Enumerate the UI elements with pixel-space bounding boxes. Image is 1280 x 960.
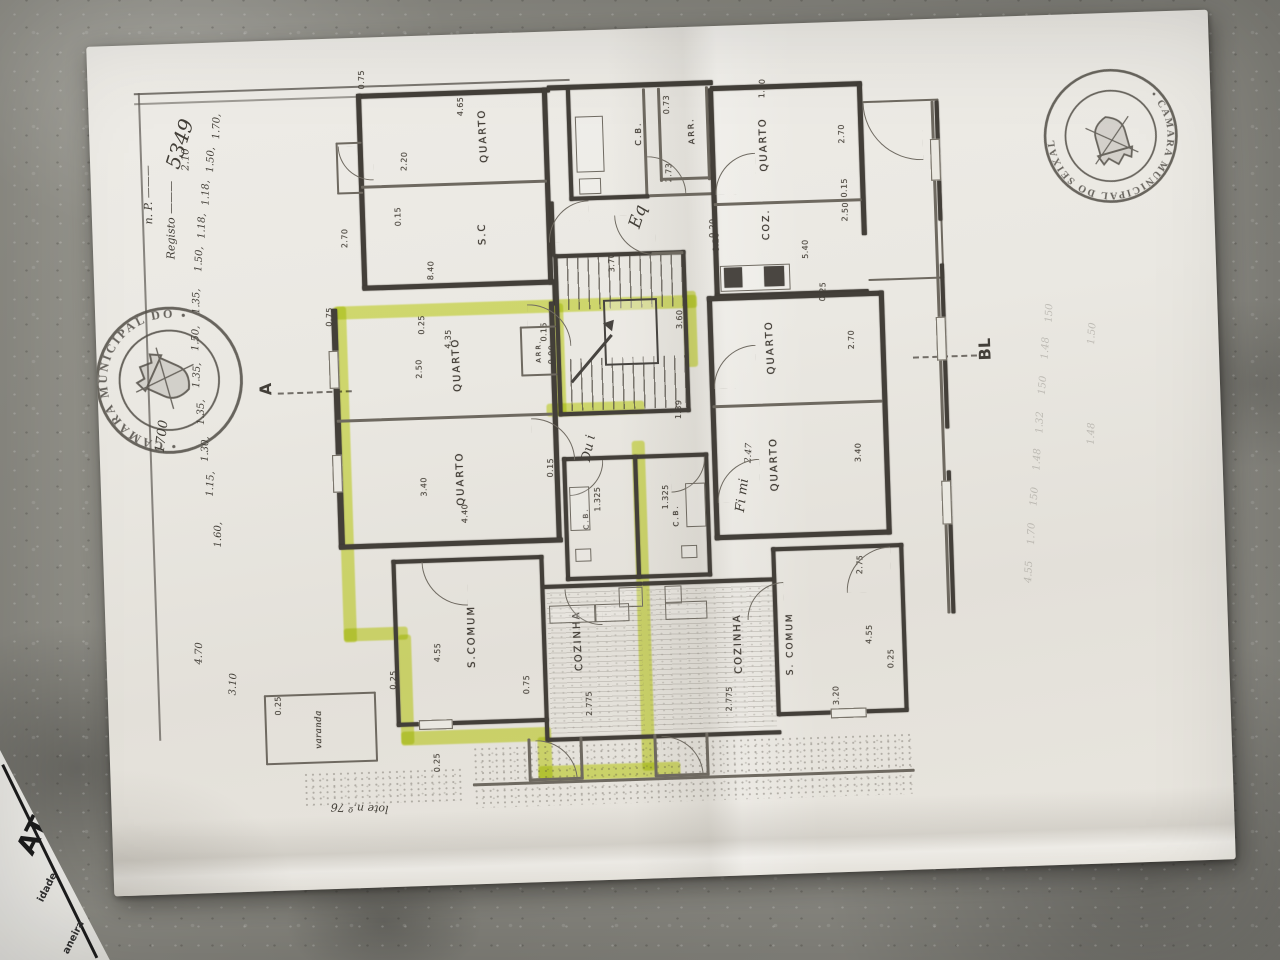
wall [569, 194, 649, 201]
dimension-text: 4.35 [443, 329, 452, 349]
ghost-number: 4.55 [1023, 560, 1035, 583]
fixture [549, 604, 596, 624]
room-label: COZ. [761, 208, 772, 240]
dimension-text: 2.20 [399, 152, 408, 172]
ghost-number: 150 [1028, 487, 1040, 507]
door-swing-arc [646, 155, 686, 195]
dimension-chain-item: 1.18, [201, 180, 212, 205]
fixture [575, 548, 591, 562]
partition-line [361, 180, 547, 189]
form-text-fragment: aneira [61, 919, 87, 956]
fixture [685, 483, 706, 528]
coat-of-arms-icon [130, 345, 199, 411]
door-swing-arc [338, 145, 374, 181]
appliance-icon [724, 267, 743, 288]
ghost-number: 150 [1037, 375, 1049, 395]
dimension-text: 8.40 [426, 261, 435, 281]
dimension-chain-item: 1.50, [190, 326, 201, 352]
fixture [595, 603, 630, 622]
wall [566, 89, 574, 201]
wall [547, 80, 713, 91]
dimension-text: 4.55 [864, 624, 873, 644]
dimension-chain-item: 1.35, [191, 289, 202, 314]
handwriting-note: n. P. ——— [141, 165, 155, 224]
dimension-text: 0.75 [522, 675, 531, 694]
partition-line [337, 413, 553, 423]
dimension-text: 2.70 [340, 229, 349, 248]
ghost-number: 1.48 [1086, 422, 1098, 445]
dimension-text: 4.65 [456, 97, 465, 116]
dimension-text: 1.325 [593, 487, 602, 512]
dimension-chain-item: 3.10 [227, 673, 239, 696]
dimension-text: 3.20 [831, 686, 840, 706]
window [936, 316, 947, 360]
handwriting-note: Registo ——— [164, 181, 177, 260]
dimension-chain-item: 2.10 [180, 148, 191, 170]
dimension-chain-item: 1.50, [193, 246, 205, 272]
door-swing-arc [863, 101, 924, 162]
dimension-text: 2.70 [837, 124, 846, 144]
municipal-stamp-left: • CÂMARA MUNICIPAL DO • [86, 277, 272, 483]
dimension-text: 4.55 [433, 643, 442, 663]
dimension-text: 3.40 [419, 477, 428, 497]
room-label: QUARTO [454, 451, 467, 506]
window [419, 719, 453, 730]
room-label: C.B. [672, 504, 681, 526]
dimension-text: 2.50 [840, 202, 849, 222]
door-swing-arc [716, 459, 760, 503]
fixture [681, 545, 697, 559]
room-label: ARR. [686, 117, 696, 144]
window [930, 139, 941, 181]
wall [899, 543, 909, 710]
dimension-chain-item: 1.50, [205, 147, 217, 173]
room-label: C.B. [634, 121, 643, 145]
wall [339, 537, 563, 549]
partition-line [264, 695, 268, 765]
window [328, 351, 339, 389]
door-swing-arc [845, 546, 891, 592]
dimension-text: 2.50 [414, 359, 423, 379]
dimension-text: 0.75 [357, 70, 366, 90]
partition-line [714, 198, 862, 205]
ghost-number: 1.50 [1086, 322, 1099, 345]
room-label: QUARTO [757, 117, 770, 172]
door-swing-arc [712, 345, 756, 389]
door-swing-arc [714, 153, 756, 195]
dimension-chain-item: 4.70 [194, 642, 205, 664]
dimension-chain-item: 1.30, [200, 436, 211, 462]
door-swing-arc [421, 561, 467, 607]
stair-landing [603, 298, 659, 366]
room-label: QUARTO [768, 437, 781, 492]
fixture [665, 601, 708, 620]
dimension-chain-item: 1.35, [191, 362, 203, 388]
coat-of-arms-icon [1084, 111, 1140, 170]
door-swing-arc [614, 214, 656, 256]
fixture [575, 116, 605, 173]
floorplan-drawing: QUARTOS.CC.B.ARR.QUARTOCOZ.QUARTOQUARTOA… [309, 38, 994, 829]
dimension-text: 2.70 [847, 330, 856, 350]
dimension-text: 0.73 [662, 95, 671, 115]
wall [391, 555, 543, 564]
dimension-chain-item: 1.18, [196, 213, 207, 239]
exterior-paving-texture [302, 767, 463, 806]
ghost-number: 1.70 [1026, 522, 1038, 545]
room-label: S.C [477, 222, 489, 245]
dimension-text: 1.325 [661, 484, 670, 509]
ghost-number: 150 [1044, 303, 1056, 322]
dimension-text: 0.15 [840, 178, 849, 197]
wall [362, 279, 554, 290]
window [831, 707, 867, 718]
wall [710, 81, 862, 91]
partition-line [374, 692, 378, 762]
door-swing-arc [531, 417, 575, 461]
dimension-chain-item: 1.70, [211, 114, 222, 140]
floorplan-sheet: • CÂMARA MUNICIPAL DO • • CÂMARA MUNICIP… [86, 10, 1236, 897]
window [332, 455, 343, 493]
window [941, 480, 952, 524]
fixture [579, 178, 602, 195]
partition-line [264, 692, 376, 698]
dimension-text: 0.25 [417, 315, 426, 334]
ghost-number: 1.32 [1034, 411, 1046, 434]
handwriting-note: 5349 [160, 116, 198, 172]
partition-line [520, 327, 524, 377]
partition-line [266, 760, 378, 766]
dimension-text: 0.15 [393, 207, 402, 227]
highlighter-mark [398, 634, 415, 744]
room-label: S. COMUM [785, 612, 796, 675]
room-label: QUARTO [476, 108, 490, 163]
dimension-text: 4.40 [460, 504, 469, 523]
photo-scene: AT idade aneira • CÂMARA MUNICIPAL DO • [0, 0, 1280, 960]
dimension-chain-item: 1.60, [213, 522, 224, 547]
dimension-chain-item: 1.15, [205, 471, 217, 497]
door-swing-arc [548, 200, 590, 242]
wall [879, 291, 892, 535]
ghost-number: 1.48 [1040, 337, 1052, 360]
municipal-stamp-right: • CÂMARA MUNICIPAL DO SEIXAL [1023, 48, 1198, 223]
dimension-chain-item: 1.35, [196, 399, 207, 424]
wall [358, 87, 550, 98]
room-label: QUARTO [764, 320, 778, 375]
dimension-text: 3.40 [854, 443, 863, 462]
appliance-icon [764, 266, 785, 287]
dimension-text: 0.25 [273, 696, 282, 716]
dimension-text: 0.25 [886, 649, 895, 668]
room-label: varanda [314, 710, 324, 749]
partition-line [712, 400, 882, 409]
ghost-number: 1.48 [1031, 448, 1043, 471]
wall [715, 529, 891, 540]
partition-line [868, 277, 944, 282]
dimension-text: 5.40 [801, 239, 810, 259]
form-text-fragment: idade [36, 871, 60, 904]
fixture [569, 486, 590, 531]
room-label: S.COMUM [466, 605, 478, 668]
